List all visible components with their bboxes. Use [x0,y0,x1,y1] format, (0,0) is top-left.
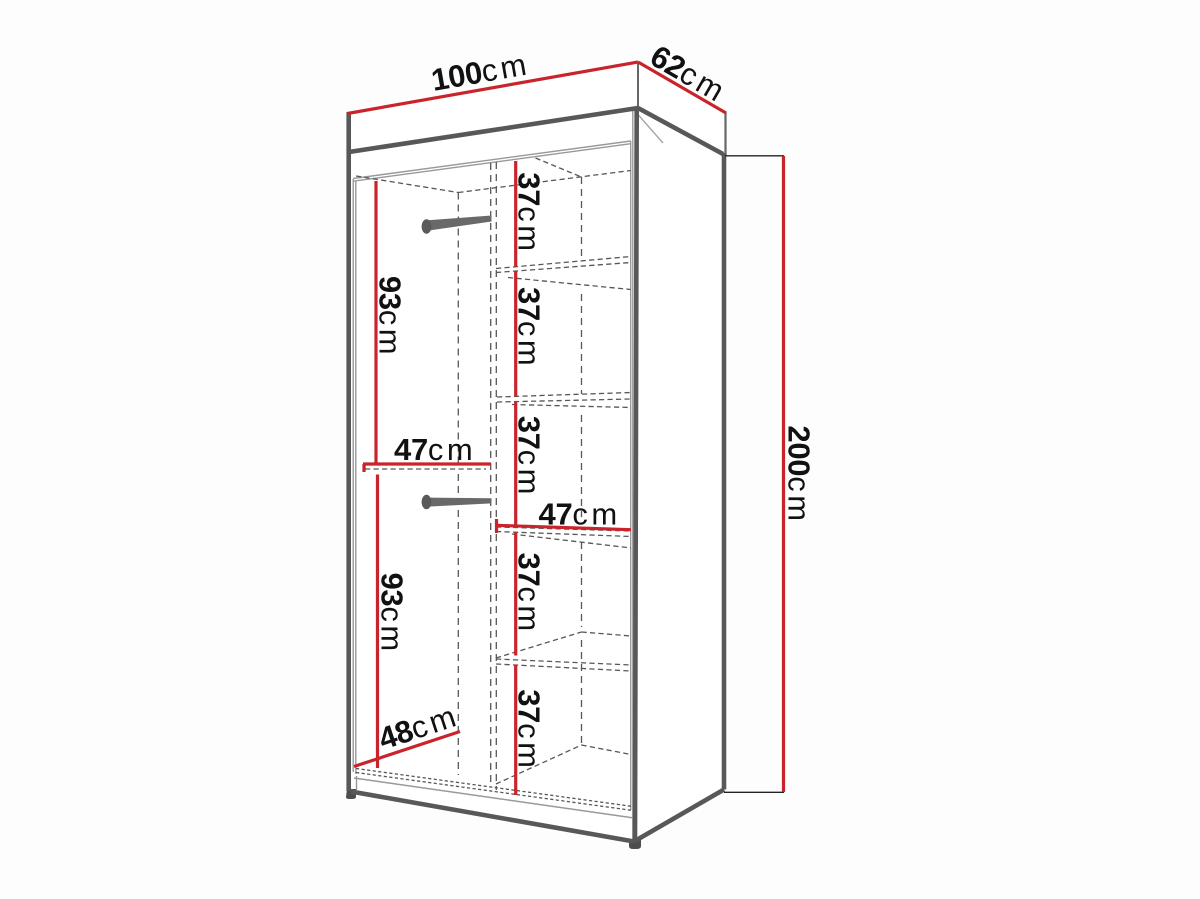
svg-text:37cm: 37cm [512,416,547,498]
svg-text:93cm: 93cm [375,573,410,655]
svg-text:37cm: 37cm [512,287,547,369]
svg-text:37cm: 37cm [512,689,547,771]
svg-text:37cm: 37cm [512,553,547,635]
svg-text:93cm: 93cm [373,276,408,358]
svg-text:47cm: 47cm [539,497,621,532]
svg-text:37cm: 37cm [512,172,547,254]
svg-text:200cm: 200cm [782,425,817,524]
svg-text:47cm: 47cm [394,432,476,467]
